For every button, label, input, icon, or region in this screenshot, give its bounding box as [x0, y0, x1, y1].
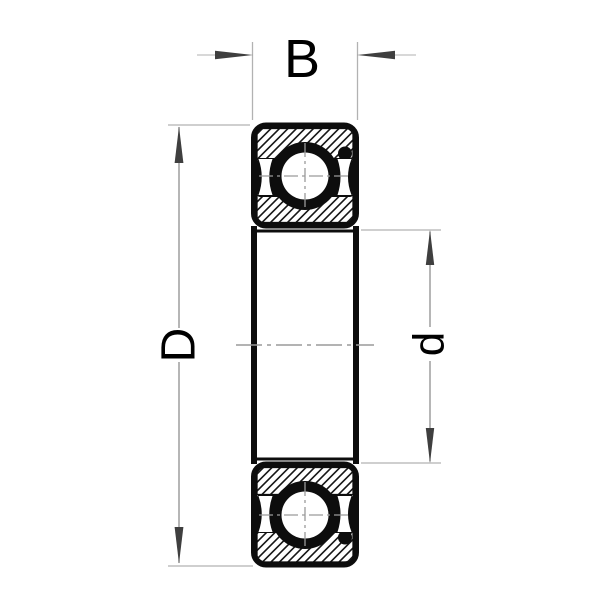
bore-diameter-label: d	[405, 332, 454, 356]
outer-diameter-label: D	[153, 328, 206, 363]
bearing-dimension-diagram: B D d	[0, 0, 600, 600]
b-arrow-right-icon	[357, 51, 395, 59]
d-bore-arrow-up-icon	[426, 230, 434, 265]
diagram-canvas: B D d	[0, 0, 600, 600]
ring-section-bottom	[254, 465, 356, 565]
bearing-section-view	[236, 126, 374, 565]
seal-anchor-top	[338, 147, 352, 161]
width-label: B	[284, 29, 320, 89]
d-outer-arrow-up-icon	[175, 127, 184, 164]
dimension-d: d	[361, 230, 454, 463]
seal-anchor-bottom	[338, 531, 352, 545]
ring-section-top	[254, 126, 356, 226]
d-bore-arrow-down-icon	[426, 428, 434, 463]
dimension-B: B	[197, 29, 416, 120]
d-outer-arrow-down-icon	[175, 527, 184, 564]
b-arrow-left-icon	[215, 51, 253, 59]
